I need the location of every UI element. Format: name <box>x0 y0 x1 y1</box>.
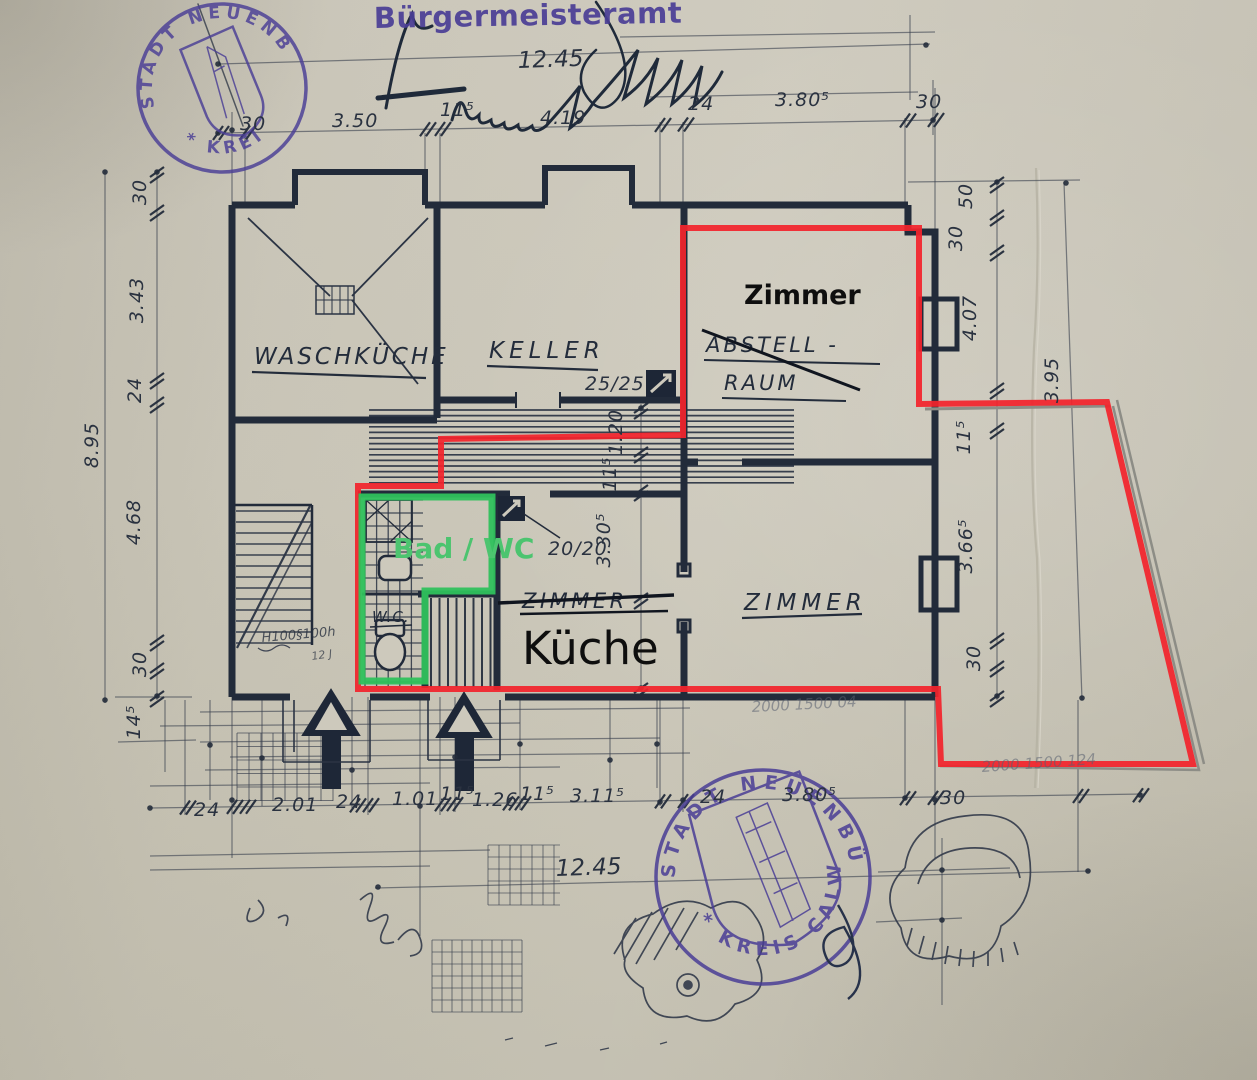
note: 12 J <box>311 647 333 663</box>
pencil-shadow-line <box>925 400 1204 770</box>
room-label-keller: KELLER <box>489 338 605 364</box>
room-label-abstell: ABSTELL - <box>704 333 839 357</box>
stamp-buergermeisteramt: Bürgermeisteramt <box>374 0 683 35</box>
stamp-tower <box>735 801 813 930</box>
stamp-arc-text: * KREIS CALW <box>687 856 857 970</box>
dim-label: 11⁵ <box>520 783 555 805</box>
dim-label: 30 <box>240 113 266 135</box>
scribble <box>247 900 288 926</box>
survey-grid-patch <box>237 733 333 801</box>
floor-plan-drawing: STADT NEUENBÜRG * KREI STADT NEUENBÜRG *… <box>0 0 1257 1080</box>
bush-sketch <box>890 815 1031 959</box>
scribble <box>360 893 422 956</box>
room-label-wc: W.C. <box>372 608 410 626</box>
annotation-bad-wc: Bad / WC <box>393 532 534 565</box>
dim-total-bottom: 12.45 <box>555 854 622 882</box>
dim-label: 24 <box>336 791 362 813</box>
dim-label: 3.43 <box>126 277 148 323</box>
underline <box>722 398 846 401</box>
dim-total-top: 12.45 <box>517 46 584 74</box>
dim-total-left: 8.95 <box>81 422 103 468</box>
room-label-zimmer-right: ZIMMER <box>743 590 867 616</box>
dim-label: 24 <box>700 786 726 808</box>
underline <box>252 372 426 378</box>
annotation-zimmer: Zimmer <box>744 280 861 311</box>
paper-crease <box>1032 168 1042 788</box>
entrance-arrow <box>303 690 359 789</box>
dim-label: 30 <box>129 179 151 205</box>
dimension-labels-left: 30 3.43 24 4.68 30 8.95 14⁵ <box>81 179 151 739</box>
dim-label: 24 <box>124 377 146 403</box>
dim-label: 30 <box>945 225 967 251</box>
round-stamp-top-left: STADT NEUENBÜRG * KREI <box>0 0 330 246</box>
dim-label: 3.11⁵ <box>570 785 625 807</box>
dim-label: 4.19 <box>540 107 586 129</box>
dim-label: 3.80⁵ <box>782 784 837 806</box>
dimension-ticks <box>150 113 1149 815</box>
dim-label: 3.50 <box>332 110 378 132</box>
staircase-treads <box>431 598 499 687</box>
dim-outer-right: 3.95 <box>1041 357 1063 403</box>
chimney-icon <box>646 370 676 397</box>
window-note: H100§100h <box>261 625 336 646</box>
svg-text:* KREIS CALW: * KREIS CALW <box>687 856 857 970</box>
survey-grid-patch <box>432 940 522 1012</box>
room-labels: WASCHKÜCHE KELLER ABSTELL - RAUM ZIMMER … <box>252 330 880 627</box>
entrance-arrow <box>437 693 491 791</box>
dim-label: 2.01 <box>272 794 318 816</box>
dim-label: 30 <box>916 91 942 113</box>
window-niche <box>921 558 957 610</box>
window-niche <box>921 299 957 349</box>
survey-grid-patch <box>488 845 560 905</box>
chimney-size-label: 25/25 <box>585 373 645 395</box>
dim-label: 11⁵ <box>953 420 975 455</box>
dim-label: 3.30⁵ <box>593 513 615 568</box>
dim-label: 4.68 <box>123 499 145 545</box>
dim-label: 30 <box>963 645 985 671</box>
dim-label: 24 <box>194 799 220 821</box>
dim-label: 30 <box>940 787 966 809</box>
dim-label: 50 <box>955 183 977 209</box>
dim-label: 1.20 <box>605 409 627 455</box>
dim-label: 4.07 <box>959 295 981 341</box>
dim-label: 14⁵ <box>123 705 145 740</box>
dim-label: 1.26 <box>472 789 518 811</box>
dim-label: 24 <box>688 93 714 115</box>
room-label-waschkueche: WASCHKÜCHE <box>254 342 449 370</box>
dimension-labels-right: 50 30 4.07 11⁵ 3.66⁵ 30 3.95 <box>945 183 1063 671</box>
dim-label: 1.01 <box>392 788 438 810</box>
annotation-kueche: Küche <box>522 622 659 675</box>
dim-label: 11⁵ <box>599 457 621 492</box>
dim-label: 11⁵ <box>440 99 475 121</box>
underline <box>487 366 598 370</box>
dim-label: 30 <box>129 651 151 677</box>
garden-sketches <box>247 645 1030 1050</box>
room-label-raum: RAUM <box>724 371 798 395</box>
dim-label: 3.66⁵ <box>955 519 977 574</box>
dim-label: 3.80⁵ <box>775 89 830 111</box>
dim-label: 11⁵ <box>440 783 475 805</box>
toilet-icon <box>375 620 405 670</box>
